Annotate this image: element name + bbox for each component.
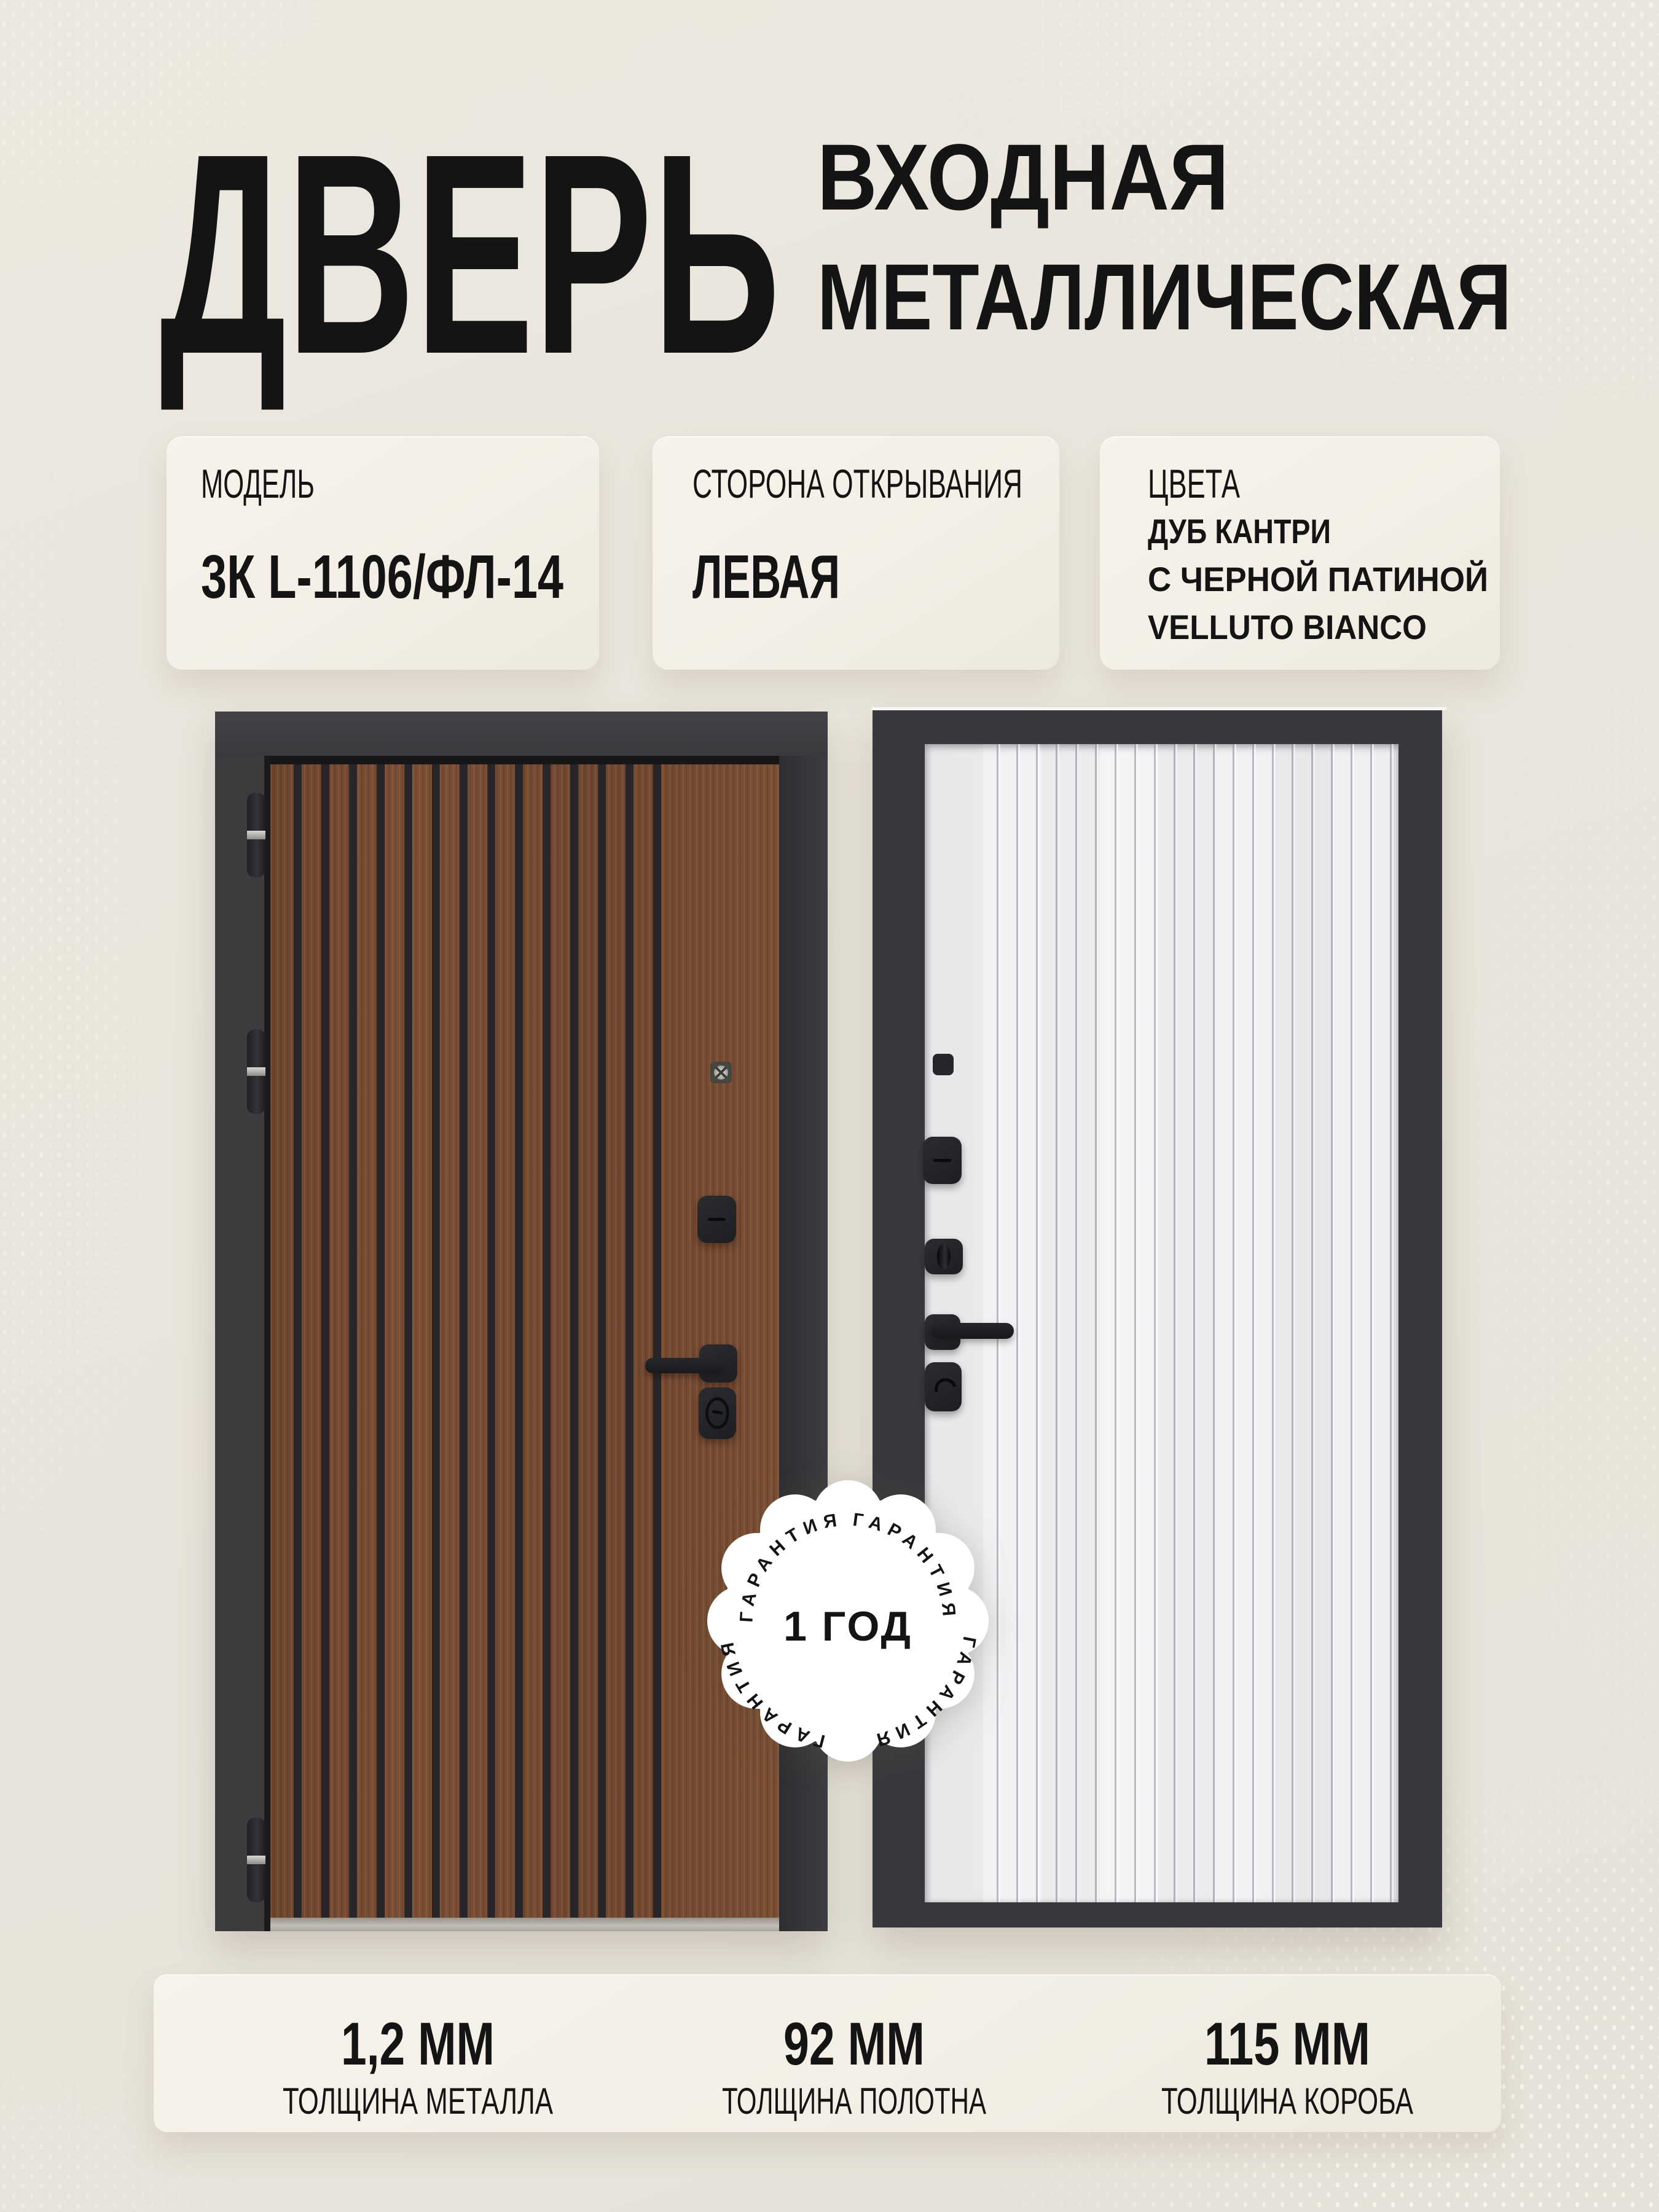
title-block: ДВЕРЬ ВХОДНАЯ МЕТАЛЛИЧЕСКАЯ — [0, 0, 1659, 430]
hinge-middle — [247, 1029, 265, 1114]
page-title: ДВЕРЬ — [160, 94, 780, 414]
subtitle-line-1: ВХОДНАЯ — [817, 125, 1229, 230]
subtitle-line-2: МЕТАЛЛИЧЕСКАЯ — [817, 245, 1512, 350]
colors-value-line-1: ДУБ КАНТРИ — [1148, 512, 1331, 551]
lock-plate-slot — [923, 1137, 962, 1184]
leaf-thickness-value: 92 ММ — [783, 2010, 925, 2077]
info-cards-text: МОДЕЛЬ 3К L-1106/ФЛ-14 СТОРОНА ОТКРЫВАНИ… — [0, 430, 1659, 688]
specs-text: 1,2 ММ ТОЛЩИНА МЕТАЛЛА 92 ММ ТОЛЩИНА ПОЛ… — [0, 1935, 1659, 2212]
door-handle — [931, 1323, 1014, 1339]
thumbturn-plate — [925, 1239, 963, 1274]
hinge-bottom — [247, 1818, 265, 1902]
cylinder-cover — [697, 1196, 736, 1243]
lock-screw-plate — [710, 1062, 732, 1083]
keyhole-cover — [699, 1387, 736, 1439]
keyhole-plate — [925, 1362, 962, 1411]
opening-side-label: СТОРОНА ОТКРЫВАНИЯ — [692, 461, 1022, 506]
metal-thickness-label: ТОЛЩИНА МЕТАЛЛА — [283, 2081, 553, 2122]
warranty-badge: ГАРАНТИЯ ГАРАНТИЯ ГАРАНТИЯ ГАРАНТИЯ 1 ГО… — [707, 1480, 989, 1762]
peephole — [933, 1054, 954, 1075]
frame-thickness-label: ТОЛЩИНА КОРОБА — [1161, 2081, 1413, 2122]
wood-slat-pattern — [270, 764, 661, 1918]
door-threshold — [270, 1918, 779, 1931]
leaf-thickness-label: ТОЛЩИНА ПОЛОТНА — [722, 2081, 986, 2122]
opening-side-value: ЛЕВАЯ — [692, 543, 840, 611]
door-frame-top — [215, 712, 828, 756]
model-card-value: 3К L-1106/ФЛ-14 — [201, 543, 563, 611]
warranty-duration: 1 ГОД — [783, 1603, 912, 1650]
model-card-label: МОДЕЛЬ — [201, 461, 315, 506]
colors-value-line-2: С ЧЕРНОЙ ПАТИНОЙ — [1148, 560, 1488, 598]
door-frame-left — [215, 756, 270, 1931]
colors-value-line-3: VELLUTO BIANCO — [1148, 608, 1427, 646]
colors-label: ЦВЕТА — [1148, 461, 1240, 506]
metal-thickness-value: 1,2 ММ — [341, 2010, 495, 2077]
door-leaf-wood — [270, 756, 779, 1931]
door-handle — [645, 1358, 722, 1373]
hinge-top — [247, 793, 265, 877]
frame-thickness-value: 115 ММ — [1204, 2010, 1370, 2077]
